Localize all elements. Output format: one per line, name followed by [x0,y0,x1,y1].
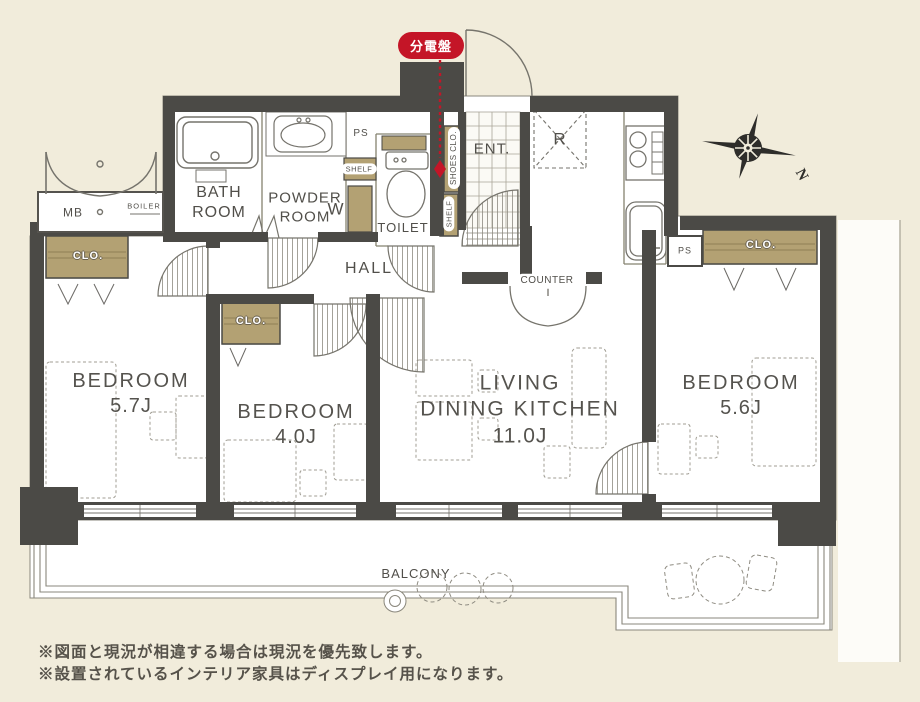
compass [695,101,804,192]
floor-plan-page: 分電盤 N BATH ROOM POWDER ROOM PS SHELF W T… [0,0,920,702]
meter-box-label: MB [63,206,83,221]
closet-left-label: CLO. [73,250,103,264]
bedroom-left-name: BEDROOM [72,369,189,394]
bedroom-middle-size: 4.0J [237,425,354,450]
toilet-shelf [382,136,426,150]
refrigerator-label: R [553,128,566,149]
bedroom-middle-title: BEDROOM 4.0J [237,400,354,450]
right-margin-strip [838,220,900,662]
washer-label: W [327,198,344,219]
bedroom-left-size: 5.7J [72,394,189,419]
bedroom-right-title: BEDROOM 5.6J [682,371,799,421]
toilet-label: TOILET [377,220,428,236]
pipe-space-label-2: PS [678,245,692,256]
kitchen-stove [626,126,666,180]
closet-middle-label: CLO. [236,315,266,329]
ldk-line2: DINING KITCHEN [420,397,620,423]
pillar-bottom-right [778,514,836,546]
shelf-label: SHELF [342,163,377,174]
floor-plan-graphic [0,0,920,702]
boiler-label: BOILER [127,201,161,210]
bath-room-label: BATH ROOM [184,183,254,223]
entrance-door [466,30,532,96]
distribution-board-badge: 分電盤 [398,32,464,59]
bedroom-left-title: BEDROOM 5.7J [72,369,189,419]
pillar-bottom-left [20,487,78,545]
hall-label: HALL [345,259,393,279]
powder-sink [266,112,346,156]
balcony-label: BALCONY [381,566,450,582]
bedroom-right-size: 5.6J [682,396,799,421]
ldk-title: LIVING DINING KITCHEN 11.0J [420,371,620,450]
bedroom-right-name: BEDROOM [682,371,799,396]
ldk-line1: LIVING [420,371,620,397]
entrance-label: ENT. [474,141,511,160]
washer-space [348,186,372,232]
counter-label: COUNTER [517,274,578,289]
ldk-size: 11.0J [420,423,620,449]
closet-right-label: CLO. [746,239,776,253]
disclaimer-line-1: ※図面と現況が相違する場合は現況を優先致します。 [38,640,432,662]
shelf-strip-label: SHELF [443,197,454,232]
bedroom-middle-name: BEDROOM [237,400,354,425]
disclaimer-line-2: ※設置されているインテリア家具はディスプレイ用になります。 [38,662,513,684]
meter-box [38,152,163,232]
toilet-fixture [386,152,428,217]
pipe-space-label: PS [353,128,368,141]
shoes-closet-label: SHOES CLO. [448,127,460,189]
